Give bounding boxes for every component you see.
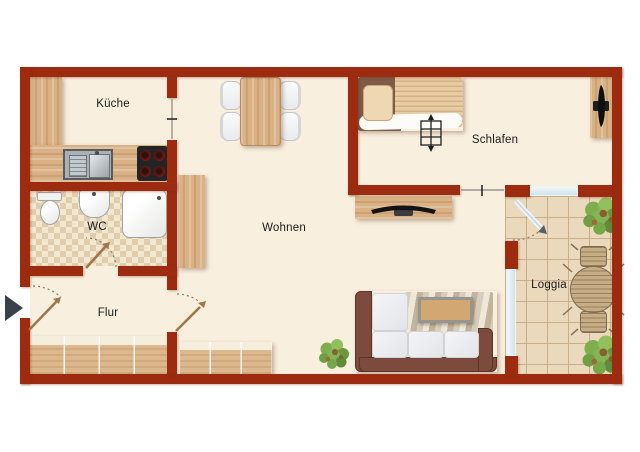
room-label-wc: WC bbox=[87, 221, 107, 233]
flur-wohnen-door bbox=[176, 294, 206, 331]
room-label-kueche: Küche bbox=[96, 98, 130, 110]
open-doorway-kitchen bbox=[167, 99, 177, 139]
room-label-schlafen: Schlafen bbox=[472, 134, 518, 146]
tv-icon bbox=[371, 206, 436, 217]
entry-door bbox=[29, 286, 61, 330]
floor-plan: Küche Schlafen Wohnen WC Flur Loggia bbox=[0, 0, 640, 452]
loggia-door bbox=[511, 201, 547, 240]
radiator-grid-symbol bbox=[421, 114, 441, 152]
desk-tv-icon bbox=[593, 85, 609, 127]
wc-door bbox=[86, 238, 116, 268]
room-label-loggia: Loggia bbox=[531, 279, 567, 291]
open-doorway-bedroom bbox=[461, 185, 504, 196]
entry-direction-arrow-icon bbox=[5, 295, 23, 321]
room-label-flur: Flur bbox=[98, 307, 119, 319]
room-label-wohnen: Wohnen bbox=[262, 222, 306, 234]
